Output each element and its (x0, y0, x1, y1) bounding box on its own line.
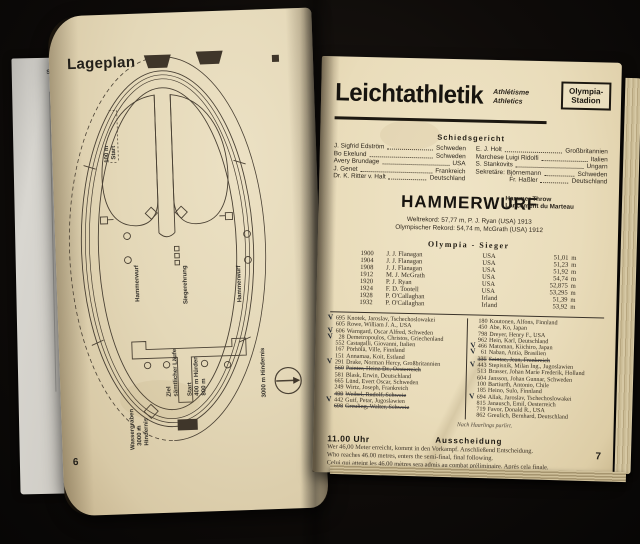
handwritten-note: Nach Haarlings parlirt. (368, 420, 602, 431)
event-translations: Hammer Throw Lancement du Marteau (505, 195, 574, 212)
label-hindernis-right: 3000 m Hindernis (260, 347, 268, 398)
pen-checkmark: V (468, 393, 474, 400)
label-start: Start (187, 382, 193, 396)
tunnel-block (177, 419, 197, 431)
judge-country: Schweden (436, 152, 466, 160)
header-rule (335, 116, 547, 124)
olympic-winners-table: 1900 J. J. Flanagan USA 51,01 m 1904 J. … (359, 250, 576, 311)
judge-name: Dr. K. Ritter v. Halt (333, 173, 386, 182)
stadium-tower-right (196, 51, 223, 65)
stadium-plan-diagram: 100 m Start Hammerwurf Hammerwurf Sieger… (47, 8, 328, 517)
label-wassergraben: Wassergraben (129, 408, 136, 450)
label-hammerwurf-left: Hammerwurf (134, 264, 141, 302)
label-hindernis: Hindernis (143, 417, 150, 446)
title-english: Athletics (493, 97, 529, 107)
label-100m: 100 m (104, 146, 111, 163)
competitor-list: V 695 Knotek, Jaroslav, Tschechoslowakei… (328, 311, 604, 422)
stadium-tower-left (144, 54, 171, 68)
judge-country: Deutschland (572, 178, 608, 186)
judge-country: Großbritannien (565, 148, 608, 157)
schedule-heading: Ausscheidung (435, 435, 502, 446)
left-page: 100 m Start Hammerwurf Hammerwurf Sieger… (47, 8, 328, 517)
label-100m-start: Start (111, 146, 117, 160)
label-ziel: Ziel (166, 386, 172, 397)
right-page-number: 7 (595, 451, 601, 462)
winner-name: P. O'Callaghan (385, 299, 481, 308)
competitor-name: Greuling, Walter, Schweiz (345, 404, 409, 411)
dotted-leader (541, 182, 569, 184)
venue-line2: Stadion (569, 96, 603, 106)
dotted-leader (544, 175, 574, 177)
schedule-time: 11.00 Uhr (327, 433, 370, 444)
competitors-right-column: V 180 Koutonen, Alfons, Finnland V 450 A… (465, 318, 604, 422)
meter-unit: m (567, 304, 575, 311)
event-french: Lancement du Marteau (505, 203, 574, 212)
winner-distance: 53,92 (533, 303, 567, 311)
pen-checkmark: V (469, 361, 475, 368)
pen-checkmark: V (469, 349, 475, 356)
pen-checkmark: V (327, 358, 333, 365)
judge-name: Fr. Haßler (475, 176, 538, 185)
label-3000m: 3000 m (137, 425, 144, 446)
dotted-leader (389, 179, 427, 181)
left-page-number: 6 (73, 457, 79, 468)
competitor-name: Greulich, Bernhard, Deutschland (487, 413, 568, 421)
label-800m: 800 m (201, 378, 208, 395)
records-block: Weltrekord: 57,77 m, P. J. Ryan (USA) 19… (332, 214, 606, 236)
competitor-number: 698 (332, 403, 343, 410)
pen-checkmark: V (327, 333, 333, 340)
label-siegerehrung: Siegerehrung (182, 265, 189, 304)
judges-left-column: J. Sigfrid Edström Schweden Bo Ekelund S… (333, 142, 466, 183)
judge-row: Dr. K. Ritter v. Halt Deutschland (333, 173, 465, 184)
label-ziel2: sämtlicher Läufe (172, 348, 180, 397)
judge-country: Deutschland (430, 175, 466, 183)
judges-right-column: E. J. Holt Großbritannien Marchese Luigi… (475, 146, 608, 187)
page-title: Leichtathletik (335, 78, 484, 110)
judge-row: Fr. Haßler Deutschland (475, 176, 607, 187)
page-header: Leichtathletik Athlétisme Athletics Olym… (334, 74, 609, 128)
judges-panel: J. Sigfrid Edström Schweden Bo Ekelund S… (333, 142, 608, 186)
label-hammerwurf-right: Hammerwurf (236, 264, 243, 302)
winner-country: Irland (481, 302, 533, 310)
winner-year: 1932 (359, 299, 385, 307)
lageplan-title: Lageplan (67, 54, 136, 73)
pen-checkmark: V (328, 314, 334, 321)
title-translations: Athlétisme Athletics (493, 88, 529, 107)
label-400m-huerden: 400 m Hürden (193, 356, 200, 396)
pen-checkmark: V (326, 396, 332, 403)
competitors-left-column: V 695 Knotek, Jaroslav, Tschechoslowakei… (328, 315, 468, 419)
venue-box: Olympia- Stadion (561, 81, 612, 110)
competitor-number: 862 (474, 413, 485, 420)
right-page: Leichtathletik Athlétisme Athletics Olym… (313, 56, 622, 479)
